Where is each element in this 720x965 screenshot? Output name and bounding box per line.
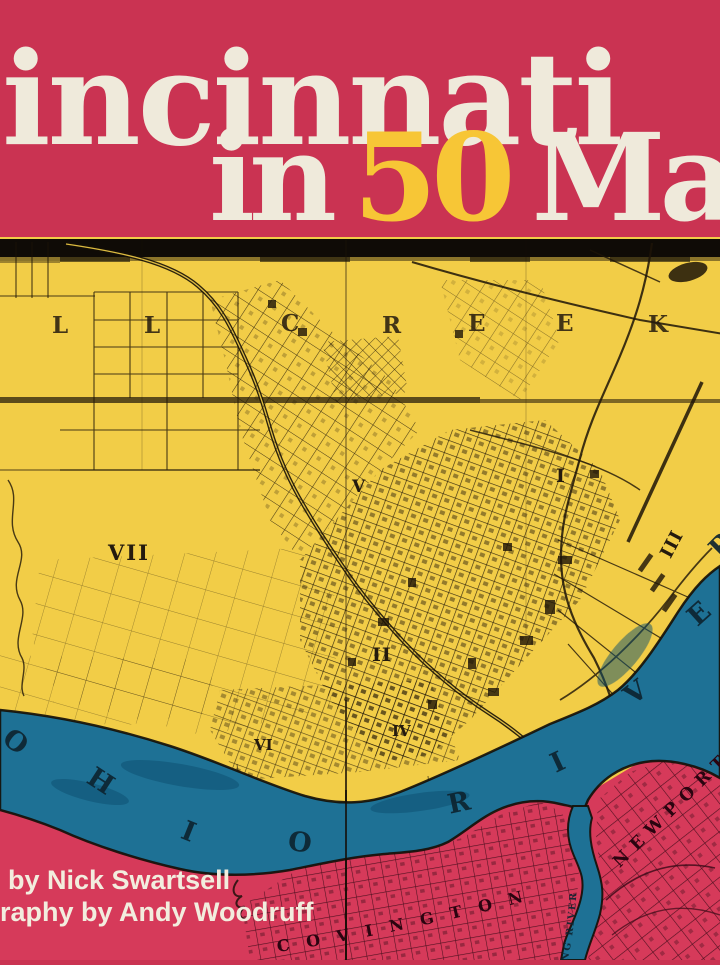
- credits: by Nick Swartsell raphy by Andy Woodruff: [8, 864, 314, 928]
- creek-letter: E: [468, 310, 486, 337]
- ward-v: V: [351, 477, 366, 497]
- creek-letter: E: [556, 310, 574, 337]
- ward-ii: II: [372, 644, 392, 666]
- title-word-maps: Maps: [532, 106, 720, 239]
- book-cover: { "banner": { "title_line1": "incinnati"…: [0, 0, 720, 960]
- creek-letter: L: [144, 312, 160, 339]
- crosshatch-blocks: [322, 336, 408, 402]
- river-letter: O: [286, 826, 314, 860]
- title-word-in: in: [209, 106, 331, 239]
- credit-cartographer: raphy by Andy Woodruff: [0, 896, 314, 928]
- creek-letter: C: [281, 310, 299, 337]
- ward-i: I: [556, 465, 565, 487]
- creek-letter: R: [382, 312, 402, 339]
- historic-map: L L C R E E K VII V I II III IV VI O H I…: [0, 237, 720, 960]
- historic-map-illustration: L L C R E E K VII V I II III IV VI O H I…: [0, 237, 720, 960]
- ward-iv: IV: [392, 722, 411, 740]
- creek-letter: L: [52, 312, 68, 339]
- credit-author: by Nick Swartsell: [8, 864, 314, 896]
- title-number-50: 50: [353, 106, 509, 239]
- creek-letter: K: [648, 311, 669, 338]
- map-top-border: [0, 239, 720, 257]
- ward-vi: VI: [253, 736, 273, 754]
- title-line2: in 50 Maps: [209, 117, 720, 238]
- ward-vii: VII: [107, 540, 150, 565]
- title-banner: incinnati in 50 Maps: [0, 0, 720, 239]
